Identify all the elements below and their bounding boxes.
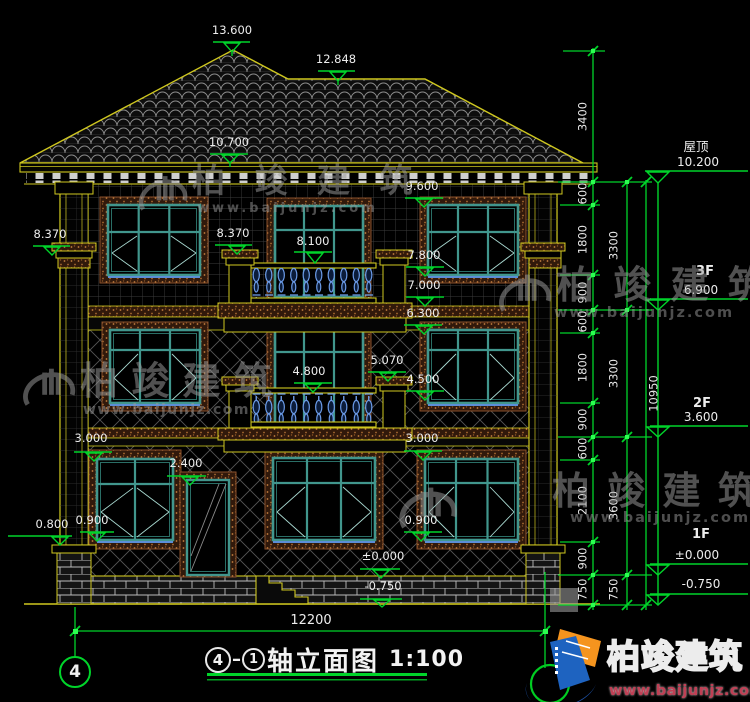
footer-logo-brand: 柏竣建筑 (607, 630, 743, 678)
watermark-icon (20, 360, 78, 418)
floor-elev-1f: ±0.000 (666, 548, 728, 562)
elevation-label: 8.100 (285, 235, 341, 248)
drawing-title: 4 – 1 轴立面图 1:100 (205, 641, 464, 678)
roof (20, 50, 583, 163)
elevation-label: 7.000 (396, 279, 452, 292)
watermark-icon (496, 266, 554, 324)
dim-label: 3300 (608, 224, 621, 268)
floor-name-1f: 1F (686, 527, 716, 542)
dim-label-total-width: 12200 (276, 613, 346, 628)
floor-elev-basement: -0.750 (670, 577, 732, 591)
entry-door (180, 472, 236, 577)
watermark-brand: 柏 竣 建 筑 (192, 164, 421, 197)
elevation-label: 8.370 (22, 228, 78, 241)
floor-name-roof: 屋顶 (672, 136, 720, 155)
elevation-label: 4.800 (281, 365, 337, 378)
elevation-label: 2.400 (158, 457, 214, 470)
dim-label: 3300 (608, 352, 621, 396)
elevation-label: 5.070 (359, 354, 415, 367)
axis-bubble-4: 4 (59, 656, 91, 688)
footer-logo-url: www.baijunjz.com (609, 683, 750, 699)
watermark-url: www.baijunjz.com (554, 306, 734, 321)
dim-label: 600 (577, 172, 590, 216)
elevation-label: 10.700 (201, 136, 257, 149)
elevation-label: 12.848 (308, 53, 364, 66)
dim-label: 1800 (577, 346, 590, 390)
axis-end-bubble: 1 (242, 648, 265, 671)
elevation-label: 3.000 (63, 432, 119, 445)
window-2f-right (420, 322, 526, 411)
footer-logo-icon (526, 629, 601, 702)
drawing-linework (0, 0, 750, 702)
watermark-url: www.baijunjz.com (197, 202, 378, 215)
elevation-label: 3.000 (394, 432, 450, 445)
elevation-label: 13.600 (204, 24, 260, 37)
watermark-brand: 柏 竣 建 筑 (556, 266, 750, 304)
dim-label: 750 (577, 568, 590, 612)
elevation-label: 4.500 (395, 373, 451, 386)
dim-label-total-height: 10950 (648, 372, 661, 416)
title-text: 轴立面图 (267, 641, 379, 678)
watermark-url: www.baijunjz.com (570, 511, 750, 526)
watermark-icon (396, 478, 460, 542)
elevation-label: ±0.000 (352, 550, 414, 563)
floor-name-2f: 2F (687, 396, 717, 411)
dim-label: 600 (577, 427, 590, 471)
title-scale: 1:100 (389, 647, 464, 672)
axis-dash: – (232, 649, 241, 670)
cad-elevation-drawing: 13.600 12.848 10.700 9.600 8.370 8.370 8… (0, 0, 750, 702)
window-1f-center (265, 449, 383, 549)
watermark-brand: 柏 竣 建 筑 (80, 362, 272, 400)
dim-label: 750 (608, 568, 621, 612)
dim-label: 3400 (577, 95, 590, 139)
watermark-url: www.baijunjz.com (83, 403, 250, 417)
elevation-label: -0.750 (352, 580, 414, 593)
dim-label: 1800 (577, 218, 590, 262)
floor-elev-2f: 3.600 (673, 410, 729, 424)
axis-start-bubble: 4 (205, 647, 231, 673)
elevation-label: 6.300 (395, 307, 451, 320)
watermark-icon (136, 168, 190, 222)
elevation-label: 8.370 (205, 227, 261, 240)
floor-elev-roof: 10.200 (670, 155, 726, 169)
elevation-label: 7.800 (396, 249, 452, 262)
selection-artifact (550, 588, 578, 612)
watermark-brand: 柏 竣 建 筑 (552, 472, 750, 510)
elevation-label: 0.800 (24, 518, 80, 531)
